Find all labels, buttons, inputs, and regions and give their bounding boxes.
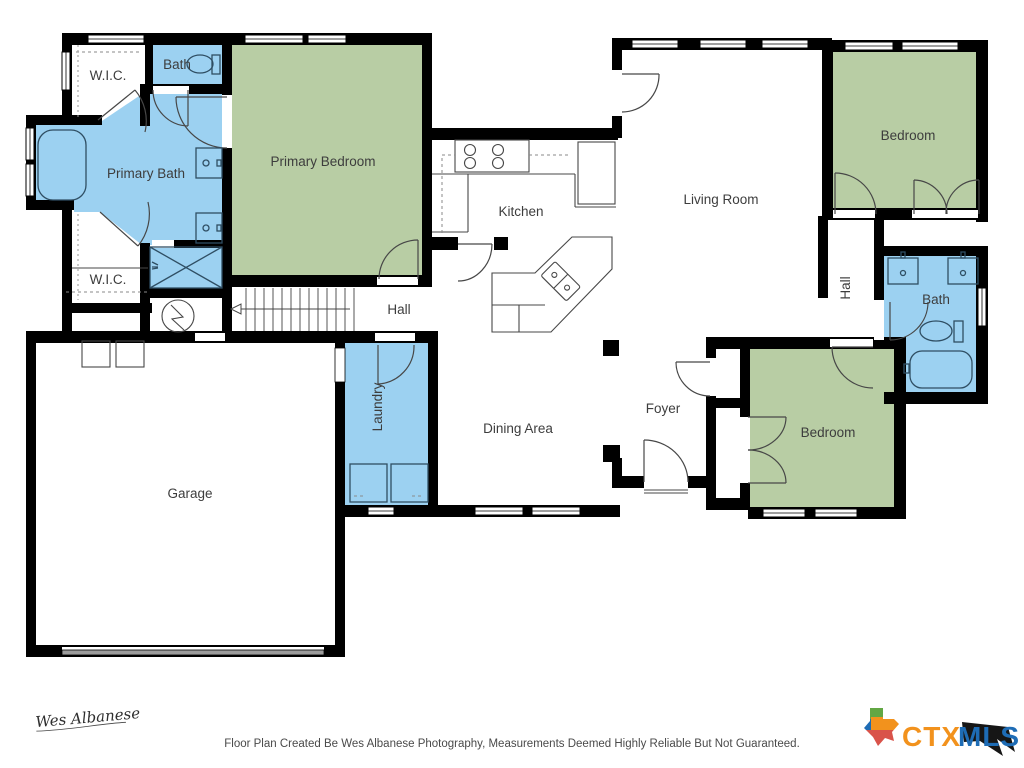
garage-door (62, 650, 324, 655)
stairs-direction-arrow (231, 304, 241, 314)
living-room-side-door (622, 74, 659, 112)
signature: Wes Albanese (35, 704, 141, 732)
label-dining-area: Dining Area (483, 421, 553, 436)
label-hall-center: Hall (387, 302, 410, 317)
logo-prefix: CTX (902, 721, 961, 752)
label-laundry: Laundry (370, 382, 385, 431)
floor-plan-svg: W.I.C. Bath Primary Bath Primary Bedroom… (0, 0, 1024, 768)
coat-closet-door (676, 362, 710, 396)
signature-text: Wes Albanese (35, 704, 141, 731)
texas-icon (858, 706, 900, 748)
logo-suffix: MLS (958, 721, 1020, 752)
tub-bay-area (36, 125, 74, 200)
label-kitchen: Kitchen (498, 204, 543, 219)
stove (455, 140, 529, 172)
disclaimer-text: Floor Plan Created Be Wes Albanese Photo… (224, 738, 800, 750)
label-bedroom-bottom-right: Bedroom (801, 425, 856, 440)
label-wic-top: W.I.C. (90, 68, 127, 83)
front-door-threshold (644, 490, 688, 493)
label-living-room: Living Room (683, 192, 758, 207)
label-primary-bath: Primary Bath (107, 166, 185, 181)
label-bath-right: Bath (922, 292, 950, 307)
kitchen-door (458, 244, 492, 281)
label-primary-bedroom: Primary Bedroom (270, 154, 375, 169)
label-garage: Garage (167, 486, 212, 501)
kitchen-fixtures (432, 140, 616, 332)
label-hall-right: Hall (838, 276, 853, 299)
label-wic-bottom: W.I.C. (90, 272, 127, 287)
label-foyer: Foyer (646, 401, 681, 416)
label-bedroom-top-right: Bedroom (881, 128, 936, 143)
kitchen-island (492, 237, 612, 332)
ctxmls-logo: CTX MLS (858, 706, 1020, 756)
stairs (231, 288, 354, 331)
island-sink (541, 261, 581, 301)
front-door (644, 440, 688, 482)
label-bath-top: Bath (163, 57, 191, 72)
refrigerator (578, 142, 615, 204)
pillar (603, 340, 619, 356)
garage-equipment (82, 341, 144, 367)
footer: Wes Albanese Floor Plan Created Be Wes A… (35, 704, 1020, 756)
water-heater (162, 300, 194, 332)
floor-plan-page: W.I.C. Bath Primary Bath Primary Bedroom… (0, 0, 1024, 768)
